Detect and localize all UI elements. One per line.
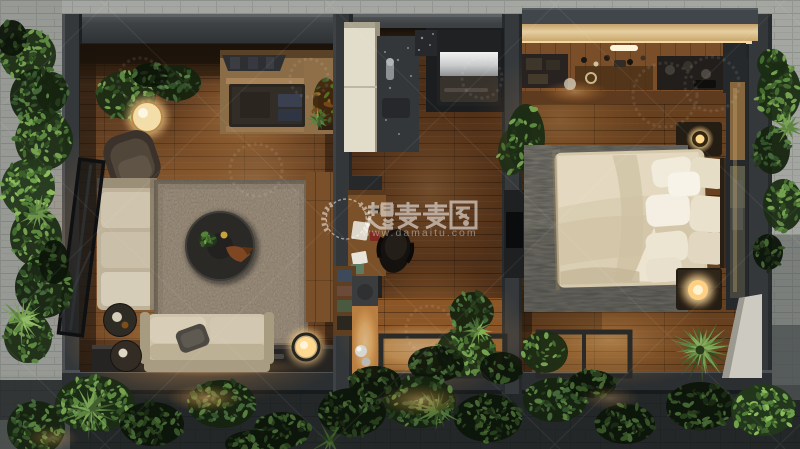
svg-text:www.damaitu.com: www.damaitu.com <box>361 227 477 239</box>
